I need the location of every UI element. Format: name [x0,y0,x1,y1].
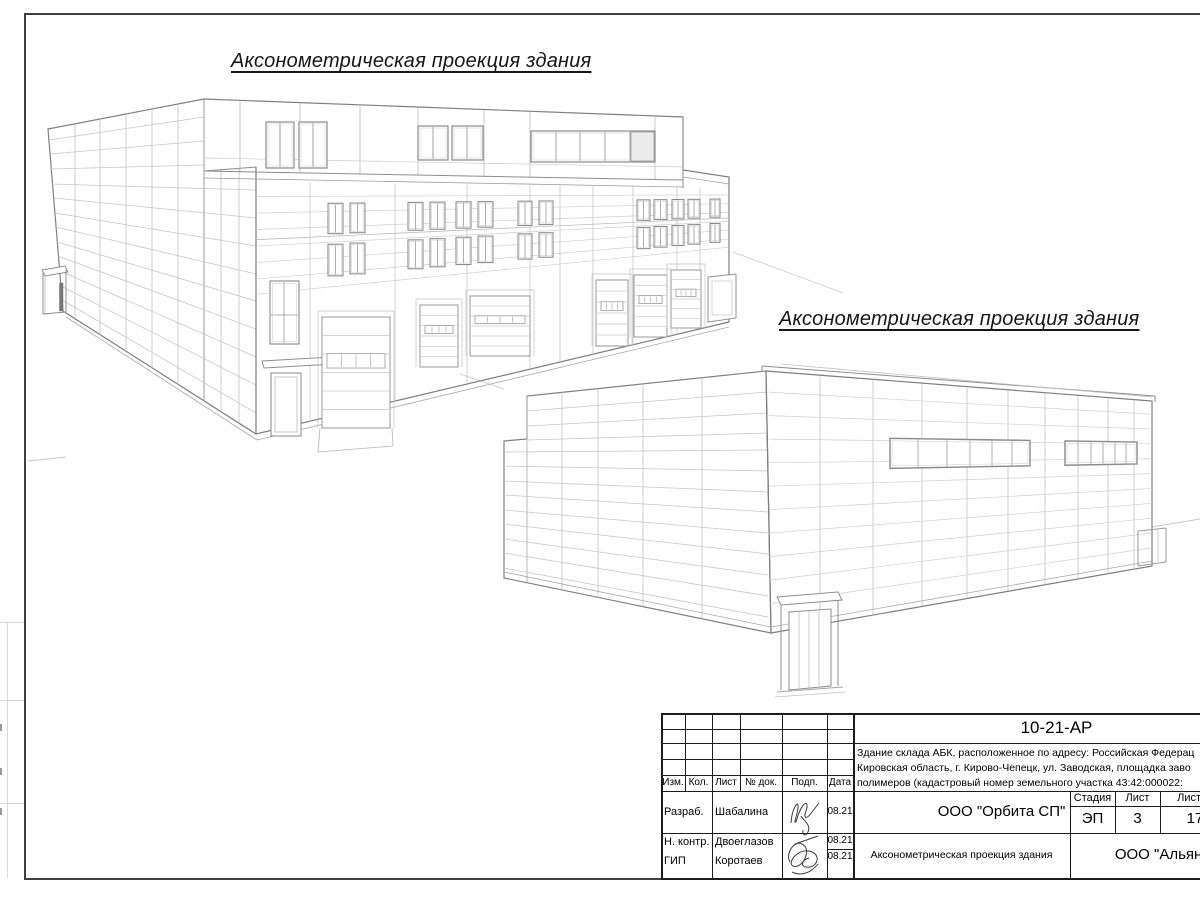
view-title-1: Аксонометрическая проекция здания [231,50,591,73]
name-shabalina: Шабалина [715,792,781,833]
titleblock-line [1115,791,1116,833]
titleblock-line [661,759,853,760]
stadia-value: ЭП [1070,806,1115,833]
sheet-title: Аксонометрическая проекция здания [853,833,1070,878]
titleblock-line [661,729,853,730]
list-label: Лист [1115,791,1160,806]
date-nkontr: 08.21 [827,834,853,849]
title-block: Изм. Кол. Лист № док. Подп. Дата Разраб.… [661,713,1200,880]
titleblock-line [1070,806,1200,807]
titleblock-line [661,713,663,880]
description-line: Кировская область, г. Кирово-Чепецк, ул.… [857,761,1200,776]
name-korotaev: Коротаев [715,853,781,870]
titleblock-line [853,713,855,880]
date-gip: 08.21 [827,850,853,865]
view-title-2: Аксонометрическая проекция здания [779,308,1139,331]
list-value: 3 [1115,806,1160,833]
drawing-sheet: { "headings": { "h1": "Аксонометрическая… [0,0,1200,900]
signature-area [782,792,827,878]
col-list: Лист [712,775,740,791]
titleblock-line [685,713,686,791]
building-1-wireframe [42,99,736,452]
role-gip: ГИП [664,853,712,870]
titleblock-line [661,833,1200,834]
description-line: полимеров (кадастровый номер земельного … [857,776,1200,791]
col-izm: Изм. [661,775,685,791]
titleblock-line [661,713,1200,715]
project-description: Здание склада АБК, расположенное по адре… [857,744,1200,792]
building-2-wireframe [504,364,1166,697]
description-line: Здание склада АБК, расположенное по адре… [857,746,1200,761]
titleblock-line [782,713,783,878]
titleblock-line [712,713,713,878]
listov-value: 17 [1160,806,1200,833]
titleblock-line [740,713,741,791]
listov-label: Листов [1160,791,1200,806]
col-kol: Кол. [685,775,712,791]
signature-korotaev [789,836,818,874]
titleblock-line [1070,791,1071,878]
date-razrab: 08.21 [827,804,853,820]
col-podp: Подп. [782,775,827,791]
titleblock-line [827,849,853,850]
titleblock-line [661,791,1200,792]
titleblock-line [1160,791,1161,833]
titleblock-line [827,713,828,878]
role-nkontr: Н. контр. [664,835,712,851]
signature-shabalina [791,803,819,835]
role-razrab: Разраб. [664,792,712,833]
titleblock-line [661,878,1200,880]
name-dvoeglazov: Двоеглазов [715,835,781,851]
col-ndok: № док. [740,775,782,791]
stadia-label: Стадия [1070,791,1115,806]
titleblock-line [661,743,1200,744]
titleblock-line [661,775,853,776]
doc-code: 10-21-АР [853,713,1200,743]
col-data: Дата [827,775,853,791]
company-name: ООО "Альянс" [1070,833,1200,878]
